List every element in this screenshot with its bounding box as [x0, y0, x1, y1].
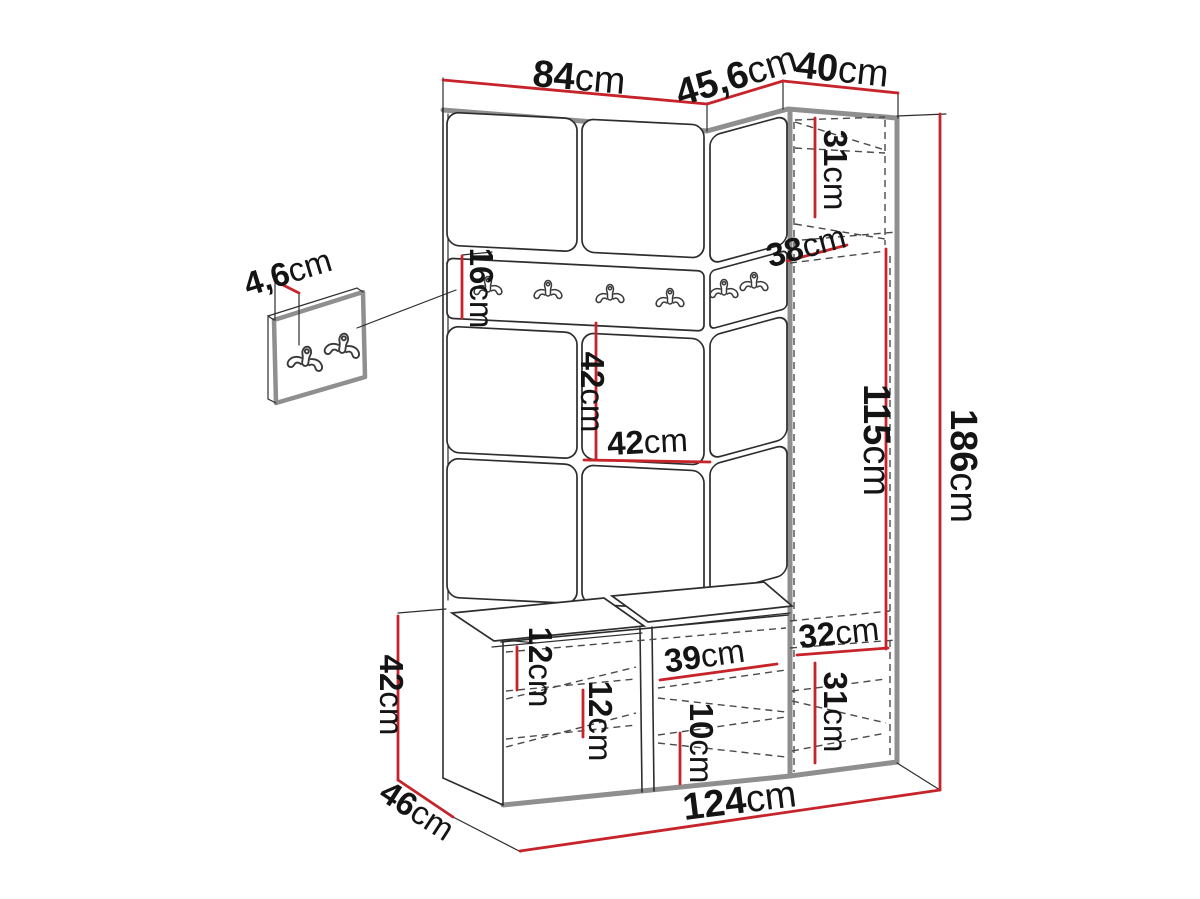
dim-label-total-height: 186cm [942, 409, 984, 523]
dim-label-upper-cabinet-height: 31cm [817, 130, 854, 211]
dim-label-hook-panel-width: 4,6cm [239, 241, 336, 303]
angled-wall-panels [710, 115, 787, 595]
wall-panel [710, 315, 787, 459]
dim-label-rail-panel-height: 16cm [463, 248, 500, 329]
dim-label-bench-shelf-width: 39cm [662, 632, 747, 680]
bench-divider [640, 627, 654, 792]
dim-label-bench-shoe-space: 10cm [683, 703, 720, 784]
dim-label-top-front-width: 84cm [531, 53, 627, 103]
detail-pointer-line [357, 290, 456, 328]
hook-panel-front [274, 292, 365, 403]
dim-label-bench-depth: 46cm [373, 773, 461, 848]
dim-label-top-side-width: 40cm [794, 44, 891, 95]
wall-panel [447, 112, 577, 252]
wall-panel [447, 458, 577, 604]
wall-panel [582, 119, 704, 258]
furniture-dimension-diagram: 84cm 45,6cm 40cm 31cm 38cm 4,6cm 16cm 42… [0, 0, 1200, 899]
dim-label-wall-panel-width: 42cm [606, 421, 689, 462]
dim-label-bench-shelf-spacing: 12cm [582, 681, 619, 762]
dim-label-bench-top-offset: 12cm [522, 627, 559, 708]
wall-panel [447, 326, 577, 459]
dim-label-open-niche-height: 115cm [855, 384, 897, 496]
hook-panel-detail [268, 288, 456, 403]
dim-label-wall-panel-height: 42cm [574, 352, 611, 433]
wall-panel [710, 444, 787, 595]
dim-line-wall-panel-width [584, 460, 710, 462]
diagram-canvas: 84cm 45,6cm 40cm 31cm 38cm 4,6cm 16cm 42… [0, 0, 1200, 899]
wall-panel [582, 465, 704, 610]
bench [452, 582, 792, 805]
bench-left-bottom-edge [443, 778, 503, 805]
dim-label-bench-height: 42cm [373, 655, 410, 736]
dim-label-lower-side-cabinet-height: 31cm [817, 672, 854, 753]
